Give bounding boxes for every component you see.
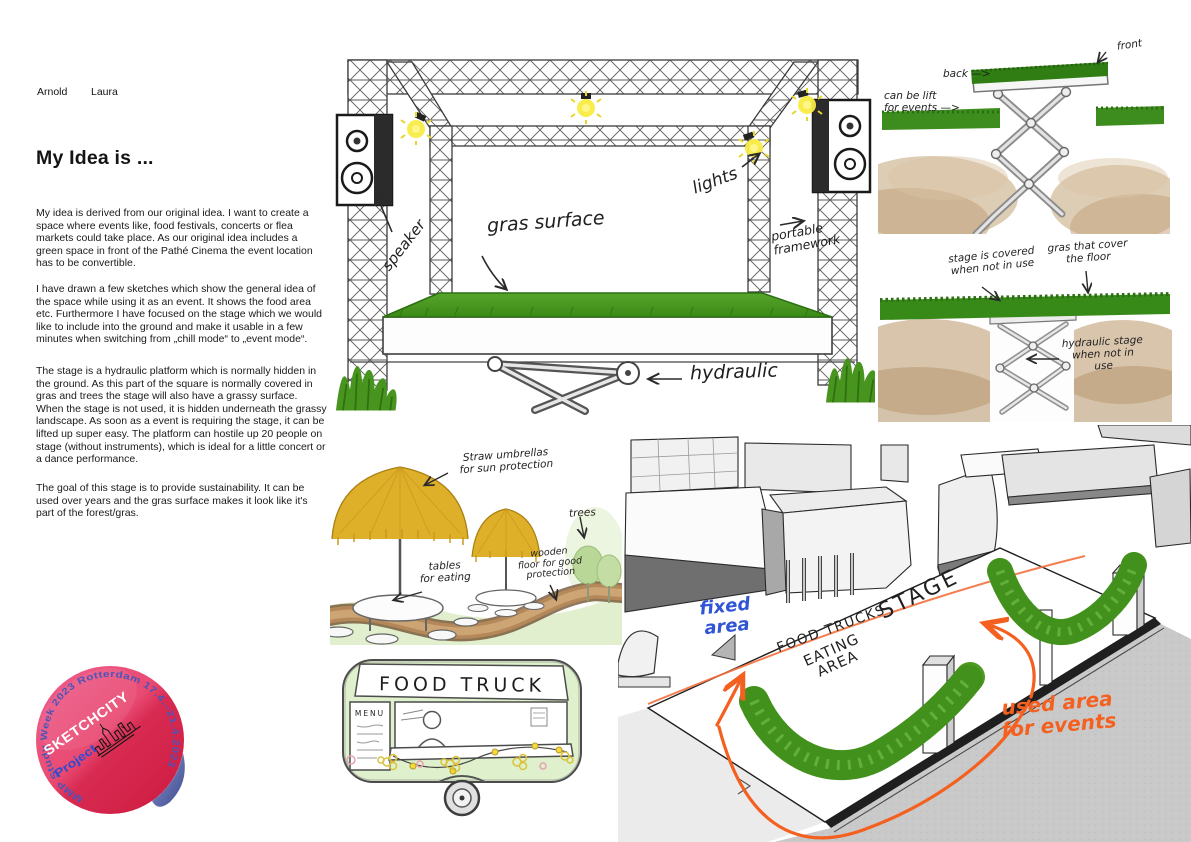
vendor-person [424,712,441,729]
speaker-left-drawing [337,115,392,205]
stage-platform [383,293,832,354]
label-fixed-area: fixed area [691,594,761,641]
label-tables: tables for eating [417,560,472,586]
author-name-laura: Laura [91,86,118,98]
label-hydraulic-stage: hydraulic stage when not in use [1059,335,1147,375]
label-back: back —> [943,69,991,81]
truck-sign-text: FOOD TRUCK [379,673,545,696]
author-name-arnold: Arnold [37,86,67,98]
sketchcity-badge: MMP Study Week 2023 Rotterdam 17.4.–21.4… [28,664,190,826]
label-hydraulic: hydraulic [690,360,779,384]
paragraph-stage: The stage is a hydraulic platform which … [36,365,327,466]
left-street-furniture [618,631,670,687]
hydraulic-lift-up-sketch [878,38,1170,234]
paragraph-sketches: I have drawn a few sketches which show t… [36,283,327,346]
buildings [625,425,1191,612]
label-trees: trees [569,507,596,520]
small-wedge [712,635,735,660]
hydraulic-scissor [488,357,639,411]
serving-window [389,702,573,760]
lift-platform [971,62,1108,92]
paragraph-intro: My idea is derived from our original ide… [36,207,327,270]
page-title: My Idea is ... [36,147,154,170]
food-truck-sketch: FOOD TRUCK MENU [335,650,593,822]
label-can-be-lift: can be lift for events —> [884,91,960,115]
paragraph-goal: The goal of this stage is to provide sus… [36,482,327,520]
truck-sign: FOOD TRUCK [355,664,568,700]
label-wooden-floor: wooden floor for good protection [515,545,586,583]
design-sheet-page: Arnold Laura My Idea is ... My idea is d… [0,0,1191,842]
menu-board-text: MENU [355,709,385,718]
ground-wash [878,156,1170,234]
